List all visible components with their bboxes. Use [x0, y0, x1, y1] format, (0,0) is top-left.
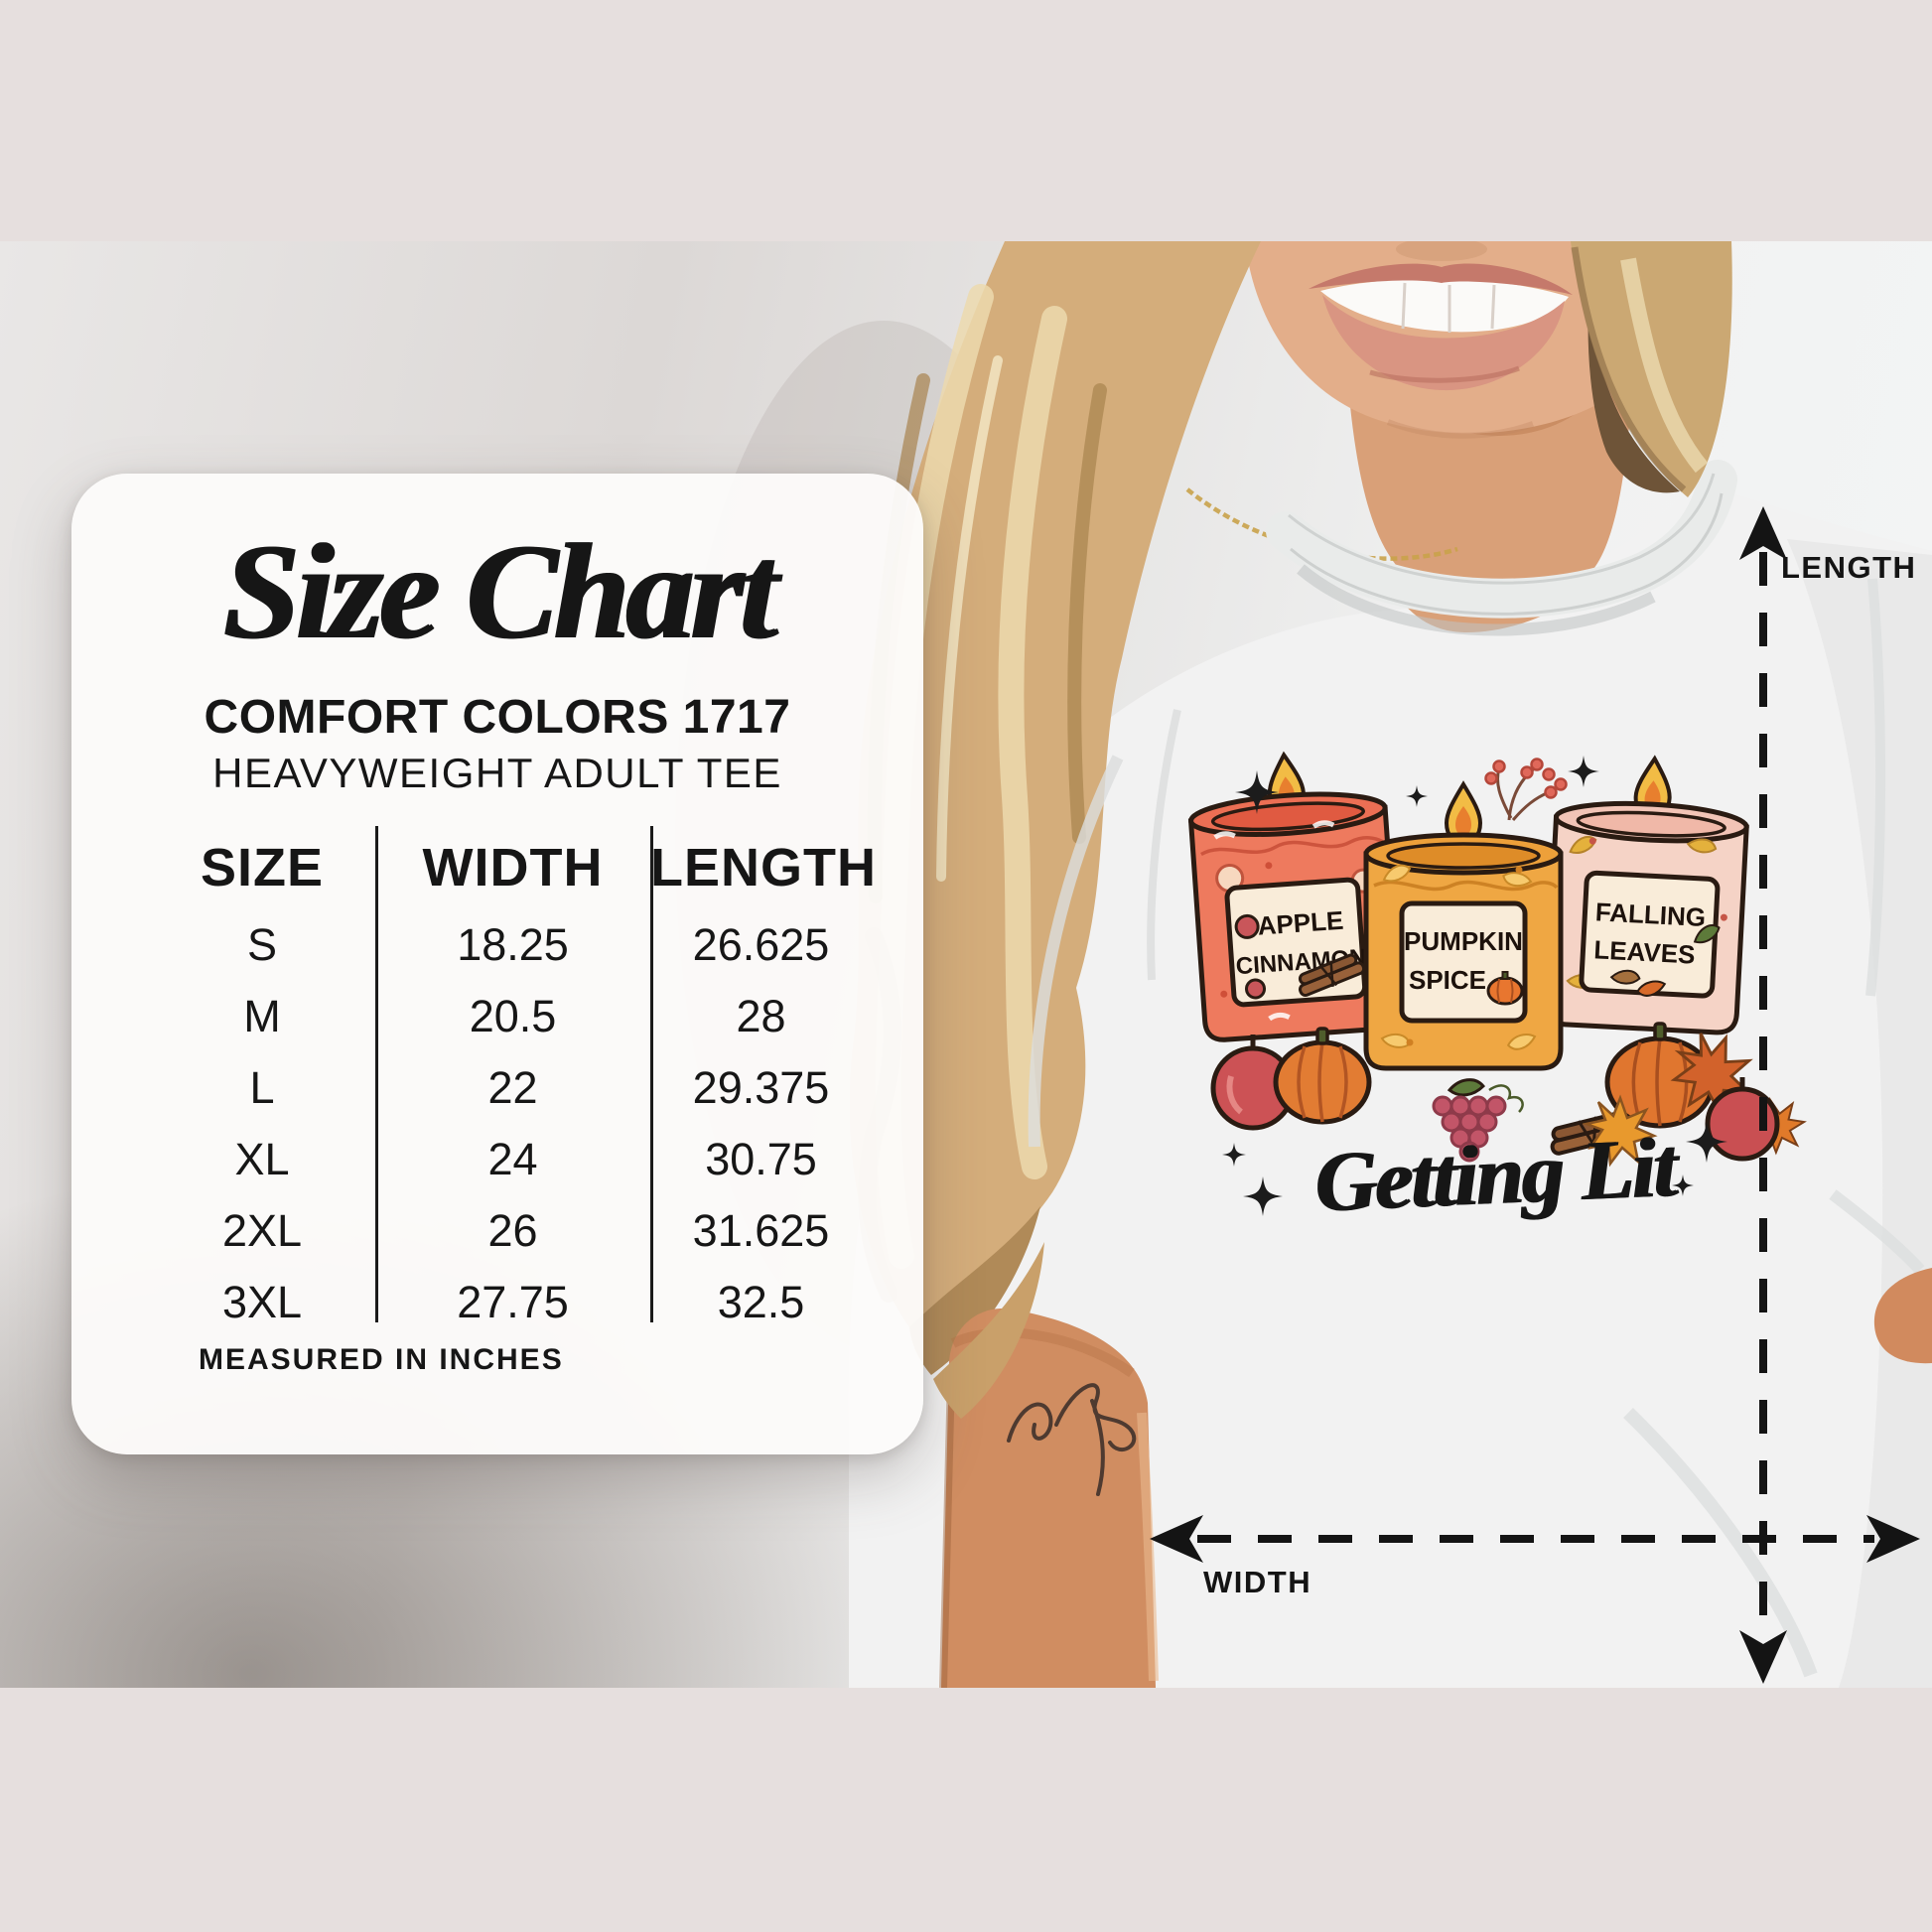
- width-cell: 24: [375, 1134, 650, 1185]
- width-cell: 20.5: [375, 991, 650, 1042]
- candle-falling-leaves: FALLING LEAVES: [1546, 754, 1750, 1034]
- size-cell: 2XL: [149, 1205, 375, 1257]
- column-header-size: SIZE: [149, 837, 375, 898]
- size-cell: L: [149, 1062, 375, 1114]
- shirt-caption: Getting Lit: [1244, 1109, 1744, 1240]
- length-label: LENGTH: [1781, 550, 1916, 586]
- product-mockup: APPLE CINNAMON FAL: [0, 0, 1932, 1932]
- product-line: HEAVYWEIGHT ADULT TEE: [71, 750, 923, 797]
- length-cell: 32.5: [650, 1277, 872, 1328]
- width-cell: 26: [375, 1205, 650, 1257]
- pumpkin-icon: [1276, 1029, 1369, 1122]
- size-cell: M: [149, 991, 375, 1042]
- width-cell: 18.25: [375, 919, 650, 971]
- length-cell: 30.75: [650, 1134, 872, 1185]
- width-cell: 22: [375, 1062, 650, 1114]
- table-row: S 18.25 26.625: [149, 909, 872, 981]
- measured-note: MEASURED IN INCHES: [199, 1343, 564, 1377]
- size-cell: 3XL: [149, 1277, 375, 1328]
- candle-label-line2: LEAVES: [1593, 934, 1697, 969]
- apple-icon: [1235, 915, 1258, 938]
- column-header-length: LENGTH: [650, 837, 872, 898]
- width-label: WIDTH: [1203, 1565, 1311, 1600]
- berries-icon: [1486, 759, 1567, 821]
- table-row: L 22 29.375: [149, 1052, 872, 1124]
- table-header-row: SIZE WIDTH LENGTH: [149, 826, 872, 909]
- candle-label-line1: FALLING: [1594, 897, 1707, 932]
- size-cell: XL: [149, 1134, 375, 1185]
- table-row: M 20.5 28: [149, 981, 872, 1052]
- size-cell: S: [149, 919, 375, 971]
- length-cell: 28: [650, 991, 872, 1042]
- width-cell: 27.75: [375, 1277, 650, 1328]
- table-row: 3XL 27.75 32.5: [149, 1267, 872, 1338]
- sparkle-icon: [1568, 756, 1599, 787]
- length-cell: 29.375: [650, 1062, 872, 1114]
- candle-label-line1: PUMPKIN: [1404, 926, 1523, 956]
- column-header-width: WIDTH: [375, 837, 650, 898]
- length-cell: 31.625: [650, 1205, 872, 1257]
- size-table: SIZE WIDTH LENGTH S 18.25 26.625 M 20.5 …: [149, 826, 872, 1338]
- table-row: XL 24 30.75: [149, 1124, 872, 1195]
- length-cell: 26.625: [650, 919, 872, 971]
- brand-line: COMFORT COLORS 1717: [71, 690, 923, 745]
- apple-icon: [1246, 979, 1265, 998]
- candle-label-line2: SPICE: [1409, 965, 1486, 995]
- column-divider: [650, 826, 653, 1322]
- table-row: 2XL 26 31.625: [149, 1195, 872, 1267]
- size-chart-card: Size Chart COMFORT COLORS 1717 HEAVYWEIG…: [71, 474, 923, 1454]
- sparkle-icon: [1222, 1143, 1246, 1167]
- size-chart-title: Size Chart: [71, 499, 923, 684]
- candle-pumpkin-spice: PUMPKIN SPICE: [1366, 784, 1561, 1068]
- sparkle-icon: [1406, 785, 1428, 807]
- column-divider: [375, 826, 378, 1322]
- candle-label-line1: APPLE: [1257, 905, 1345, 941]
